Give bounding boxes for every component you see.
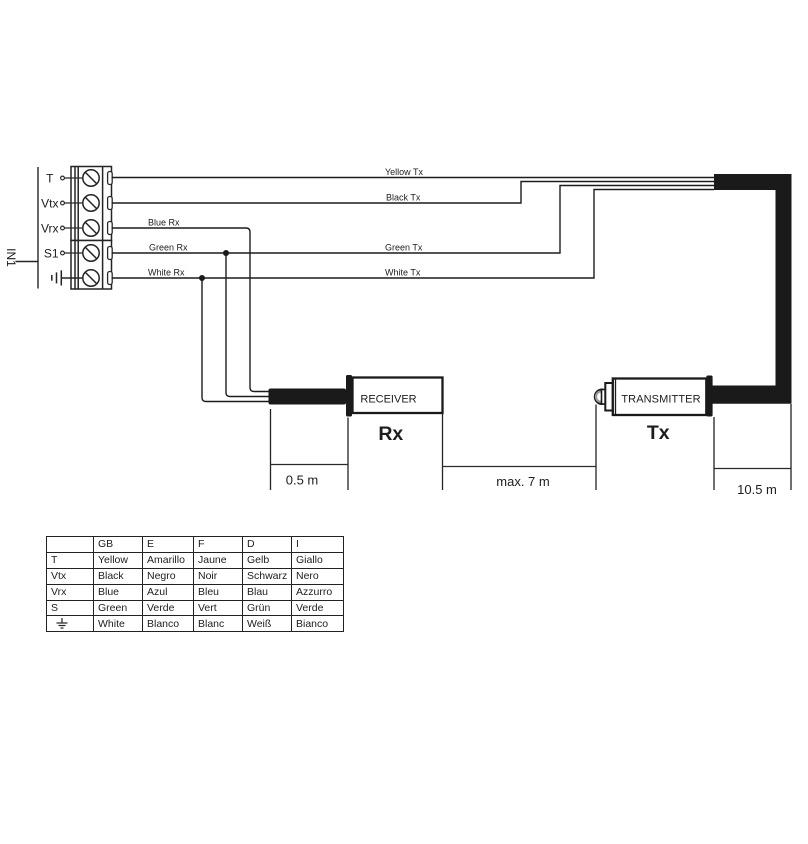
svg-text:White Rx: White Rx bbox=[148, 268, 185, 278]
svg-text:Green Rx: Green Rx bbox=[149, 243, 188, 253]
svg-text:Yellow Tx: Yellow Tx bbox=[385, 167, 424, 177]
svg-text:Green Tx: Green Tx bbox=[385, 243, 423, 253]
svg-text:IN1: IN1 bbox=[4, 248, 18, 267]
svg-text:Black Tx: Black Tx bbox=[386, 193, 421, 203]
svg-text:Rx: Rx bbox=[378, 423, 403, 445]
svg-text:RECEIVER: RECEIVER bbox=[360, 394, 416, 406]
svg-text:S1: S1 bbox=[44, 246, 59, 260]
svg-text:Vrx: Vrx bbox=[41, 221, 59, 235]
svg-text:TRANSMITTER: TRANSMITTER bbox=[621, 393, 700, 405]
svg-text:T: T bbox=[46, 171, 54, 185]
svg-text:Vtx: Vtx bbox=[41, 196, 58, 210]
svg-text:10.5 m: 10.5 m bbox=[737, 482, 777, 497]
svg-text:Tx: Tx bbox=[647, 422, 670, 444]
svg-text:Blue Rx: Blue Rx bbox=[148, 218, 180, 228]
svg-text:max. 7 m: max. 7 m bbox=[496, 474, 549, 489]
svg-text:0.5 m: 0.5 m bbox=[286, 473, 319, 488]
svg-text:White Tx: White Tx bbox=[385, 268, 421, 278]
